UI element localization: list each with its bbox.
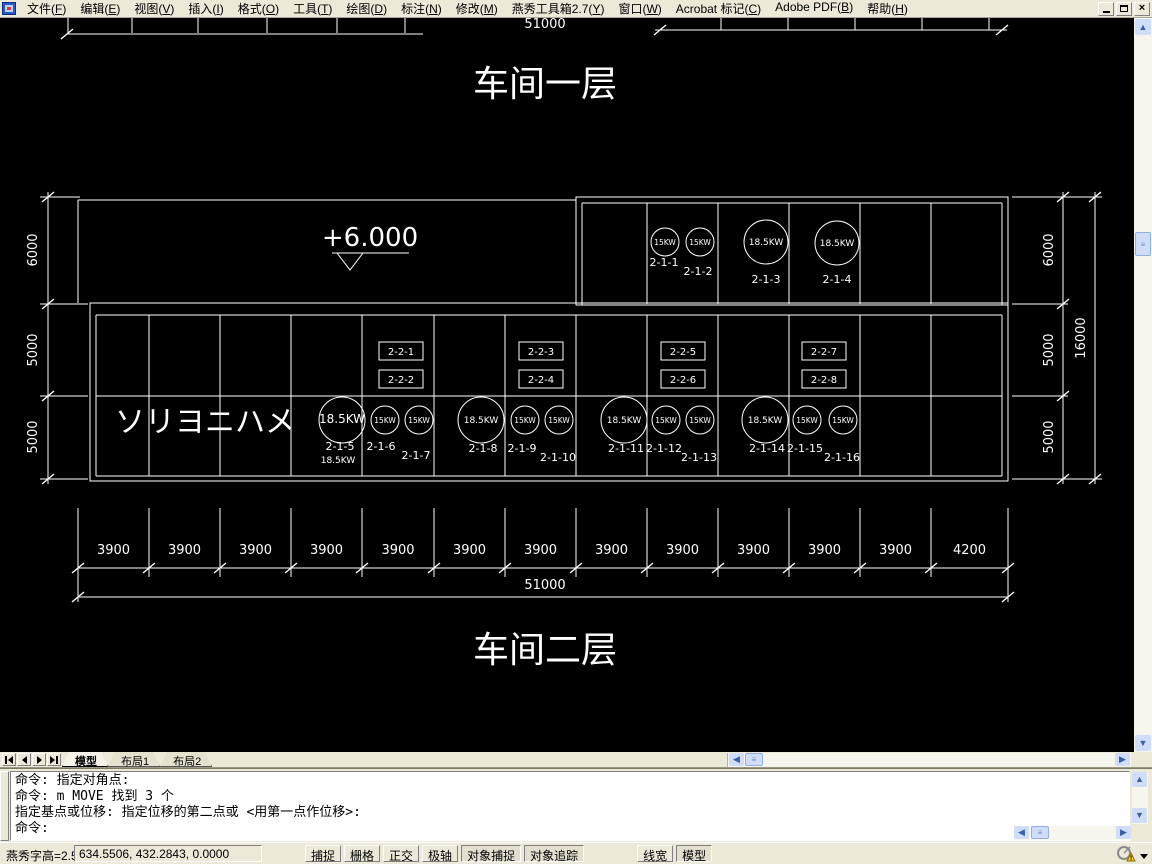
svg-text:2-2-8: 2-2-8 [811, 375, 837, 386]
command-window-splitter[interactable] [0, 771, 9, 841]
svg-text:2-2-5: 2-2-5 [670, 347, 696, 358]
first-tab-button[interactable] [2, 753, 16, 766]
svg-text:2-1-2: 2-1-2 [684, 265, 713, 278]
menu-items: 文件(F)编辑(E)视图(V)插入(I)格式(O)工具(T)绘图(D)标注(N)… [20, 0, 915, 18]
menu-item[interactable]: 修改(M) [449, 0, 505, 18]
app-icon[interactable] [2, 2, 16, 15]
scroll-up-arrow-icon[interactable]: ▲ [1135, 19, 1151, 35]
floor-plan-drawing: 51000车间一层车间二层+6.000ソリヨニハメ15KW2-1-115KW2-… [0, 18, 1134, 752]
menu-item[interactable]: 格式(O) [231, 0, 286, 18]
svg-text:2-1-6: 2-1-6 [367, 440, 396, 453]
svg-text:15KW: 15KW [689, 238, 711, 247]
last-tab-button[interactable] [47, 753, 61, 766]
toggle-正交[interactable]: 正交 [383, 845, 419, 862]
svg-text:18.5KW: 18.5KW [607, 416, 642, 426]
svg-text:6000: 6000 [1042, 233, 1057, 266]
status-bar: 燕秀字高=2.5 634.5506, 432.2843, 0.0000 捕捉栅格… [0, 842, 1152, 864]
svg-text:15KW: 15KW [654, 238, 676, 247]
svg-text:ソリヨニハメ: ソリヨニハメ [115, 405, 295, 440]
tab-nav-buttons [2, 753, 61, 766]
canvas-vertical-scrollbar[interactable]: ▲ ≡ ▼ [1134, 18, 1152, 752]
drawing-canvas[interactable]: 51000车间一层车间二层+6.000ソリヨニハメ15KW2-1-115KW2-… [0, 18, 1134, 752]
command-scroll-left-icon[interactable]: ◀ [1014, 826, 1029, 839]
layout-tab-row: 模型布局1布局2 ◀ ≡ ▶ [0, 752, 1152, 768]
svg-text:2-1-7: 2-1-7 [402, 449, 431, 462]
command-line: 命令: 指定对角点: [15, 773, 1125, 789]
svg-text:18.5KW: 18.5KW [749, 238, 784, 248]
svg-text:18.5KW: 18.5KW [319, 412, 365, 426]
menu-item[interactable]: 窗口(W) [611, 0, 668, 18]
communication-center-icon[interactable] [1116, 845, 1136, 862]
svg-text:3900: 3900 [524, 543, 557, 558]
svg-text:15KW: 15KW [408, 416, 430, 425]
minimize-icon [1103, 11, 1110, 13]
tab-布局1[interactable]: 布局1 [108, 752, 160, 767]
command-scroll-down-icon[interactable]: ▼ [1132, 808, 1147, 823]
restore-button[interactable] [1116, 2, 1132, 16]
scroll-right-arrow-icon[interactable]: ▶ [1115, 753, 1130, 766]
svg-text:5000: 5000 [1042, 420, 1057, 453]
menu-bar: 文件(F)编辑(E)视图(V)插入(I)格式(O)工具(T)绘图(D)标注(N)… [0, 0, 1152, 18]
svg-text:18.5KW: 18.5KW [464, 416, 499, 426]
toggle-栅格[interactable]: 栅格 [344, 845, 380, 862]
svg-text:3900: 3900 [808, 543, 841, 558]
svg-text:2-2-2: 2-2-2 [388, 375, 414, 386]
svg-text:2-1-10: 2-1-10 [540, 451, 576, 464]
command-window: 命令: 指定对角点:命令: m MOVE 找到 3 个指定基点或位移: 指定位移… [0, 768, 1152, 842]
command-scroll-right-icon[interactable]: ▶ [1116, 826, 1131, 839]
menu-item[interactable]: 视图(V) [127, 0, 181, 18]
layout-tabs: 模型布局1布局2 [62, 752, 212, 768]
svg-text:4200: 4200 [953, 543, 986, 558]
svg-text:3900: 3900 [737, 543, 770, 558]
svg-text:2-1-13: 2-1-13 [681, 451, 717, 464]
svg-text:2-1-3: 2-1-3 [752, 273, 781, 286]
command-line: 命令: m MOVE 找到 3 个 [15, 789, 1125, 805]
menu-item[interactable]: 帮助(H) [860, 0, 915, 18]
menu-item[interactable]: Adobe PDF(B) [768, 0, 860, 18]
svg-text:2-1-1: 2-1-1 [650, 256, 679, 269]
menu-item[interactable]: 绘图(D) [339, 0, 394, 18]
svg-text:3900: 3900 [239, 543, 272, 558]
scroll-left-arrow-icon[interactable]: ◀ [729, 753, 744, 766]
svg-text:2-2-4: 2-2-4 [528, 375, 554, 386]
toggle-线宽[interactable]: 线宽 [637, 845, 673, 862]
menu-item[interactable]: 文件(F) [20, 0, 73, 18]
yanxiu-text-height: 燕秀字高=2.5 [6, 847, 78, 864]
command-hscroll-thumb[interactable]: ≡ [1031, 826, 1049, 839]
svg-text:15KW: 15KW [689, 416, 711, 425]
toggle-捕捉[interactable]: 捕捉 [305, 845, 341, 862]
menu-item[interactable]: 燕秀工具箱2.7(Y) [505, 0, 612, 18]
svg-text:6000: 6000 [26, 233, 41, 266]
toggle-对象捕捉[interactable]: 对象捕捉 [461, 845, 521, 862]
svg-text:3900: 3900 [453, 543, 486, 558]
command-scroll-up-icon[interactable]: ▲ [1132, 772, 1147, 787]
svg-text:3900: 3900 [310, 543, 343, 558]
svg-text:2-1-16: 2-1-16 [824, 451, 860, 464]
svg-text:15KW: 15KW [374, 416, 396, 425]
svg-text:5000: 5000 [26, 333, 41, 366]
svg-text:车间一层: 车间一层 [473, 64, 617, 105]
svg-text:车间二层: 车间二层 [473, 630, 617, 671]
svg-text:16000: 16000 [1074, 317, 1089, 358]
svg-text:2-2-7: 2-2-7 [811, 347, 837, 358]
toggle-模型[interactable]: 模型 [676, 845, 712, 862]
svg-text:15KW: 15KW [548, 416, 570, 425]
menu-item[interactable]: 编辑(E) [73, 0, 127, 18]
vertical-scroll-thumb[interactable]: ≡ [1135, 232, 1151, 256]
menu-item[interactable]: 标注(N) [394, 0, 449, 18]
toggle-极轴[interactable]: 极轴 [422, 845, 458, 862]
horizontal-scroll-thumb[interactable]: ≡ [745, 753, 763, 766]
next-tab-button[interactable] [32, 753, 46, 766]
svg-text:18.5KW: 18.5KW [820, 239, 855, 249]
svg-text:51000: 51000 [524, 18, 565, 32]
autocad-window: 文件(F)编辑(E)视图(V)插入(I)格式(O)工具(T)绘图(D)标注(N)… [0, 0, 1152, 864]
svg-text:18.5KW: 18.5KW [321, 456, 356, 466]
svg-text:15KW: 15KW [832, 416, 854, 425]
svg-text:3900: 3900 [666, 543, 699, 558]
restore-icon [1120, 5, 1128, 12]
svg-text:3900: 3900 [168, 543, 201, 558]
command-line: 指定基点或位移: 指定位移的第二点或 <用第一点作位移>: [15, 805, 1125, 821]
close-icon: × [1139, 3, 1145, 14]
status-tray-dropdown-icon[interactable] [1140, 854, 1148, 859]
minimize-button[interactable] [1098, 2, 1114, 16]
command-vertical-scrollbar[interactable]: ▲ ▼ [1132, 772, 1148, 824]
status-toggles: 捕捉栅格正交极轴对象捕捉对象追踪线宽模型 [305, 845, 712, 862]
svg-text:2-1-5: 2-1-5 [326, 440, 355, 453]
svg-text:2-1-14: 2-1-14 [749, 442, 785, 455]
svg-text:2-1-9: 2-1-9 [508, 442, 537, 455]
svg-text:2-1-15: 2-1-15 [787, 442, 823, 455]
prev-tab-button[interactable] [17, 753, 31, 766]
svg-text:2-2-6: 2-2-6 [670, 375, 696, 386]
menu-item[interactable]: 插入(I) [181, 0, 230, 18]
close-button[interactable]: × [1134, 2, 1150, 16]
svg-text:2-1-11: 2-1-11 [608, 442, 644, 455]
svg-text:3900: 3900 [879, 543, 912, 558]
svg-text:2-2-3: 2-2-3 [528, 347, 554, 358]
command-line: 命令: [15, 821, 1125, 837]
svg-text:3900: 3900 [595, 543, 628, 558]
svg-text:3900: 3900 [381, 543, 414, 558]
menu-item[interactable]: Acrobat 标记(C) [669, 0, 768, 18]
svg-text:5000: 5000 [1042, 333, 1057, 366]
menu-item[interactable]: 工具(T) [286, 0, 339, 18]
tab-布局2[interactable]: 布局2 [160, 752, 212, 767]
status-icons [1116, 845, 1148, 862]
svg-text:2-1-8: 2-1-8 [469, 442, 498, 455]
command-line-history[interactable]: 命令: 指定对角点:命令: m MOVE 找到 3 个指定基点或位移: 指定位移… [10, 771, 1130, 841]
svg-text:5000: 5000 [26, 420, 41, 453]
svg-text:3900: 3900 [97, 543, 130, 558]
tab-模型[interactable]: 模型 [62, 752, 108, 767]
svg-text:18.5KW: 18.5KW [748, 416, 783, 426]
toggle-对象追踪[interactable]: 对象追踪 [524, 845, 584, 862]
command-horizontal-scrollbar[interactable]: ◀ ≡ ▶ [1014, 826, 1131, 840]
svg-text:51000: 51000 [524, 578, 565, 593]
svg-text:2-1-12: 2-1-12 [646, 442, 682, 455]
coordinates-readout[interactable]: 634.5506, 432.2843, 0.0000 [74, 845, 262, 862]
window-controls: × [1098, 2, 1152, 16]
svg-text:2-2-1: 2-2-1 [388, 347, 414, 358]
canvas-horizontal-scrollbar[interactable]: ◀ ≡ ▶ [727, 753, 1131, 767]
svg-text:2-1-4: 2-1-4 [823, 273, 852, 286]
scroll-down-arrow-icon[interactable]: ▼ [1135, 735, 1151, 751]
svg-text:15KW: 15KW [655, 416, 677, 425]
svg-text:15KW: 15KW [796, 416, 818, 425]
svg-text:+6.000: +6.000 [322, 223, 418, 253]
svg-text:15KW: 15KW [514, 416, 536, 425]
